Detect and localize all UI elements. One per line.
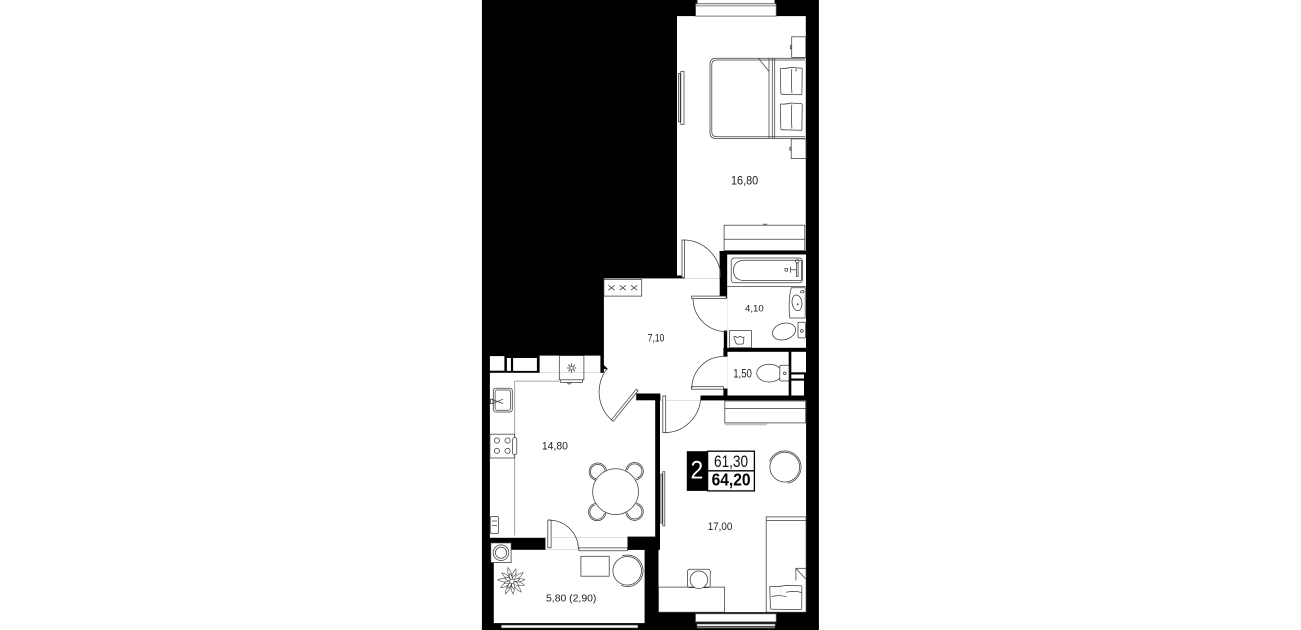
svg-text:17,00: 17,00 [708, 521, 733, 533]
svg-text:2: 2 [691, 456, 704, 484]
svg-text:5,80 (2,90): 5,80 (2,90) [546, 593, 596, 604]
svg-text:4,10: 4,10 [745, 303, 764, 314]
svg-text:1,50: 1,50 [733, 368, 752, 381]
svg-text:7,10: 7,10 [648, 333, 665, 345]
svg-text:16,80: 16,80 [731, 174, 758, 188]
svg-text:14,80: 14,80 [542, 441, 568, 453]
svg-text:61,30: 61,30 [714, 453, 748, 471]
svg-text:64,20: 64,20 [712, 470, 751, 490]
